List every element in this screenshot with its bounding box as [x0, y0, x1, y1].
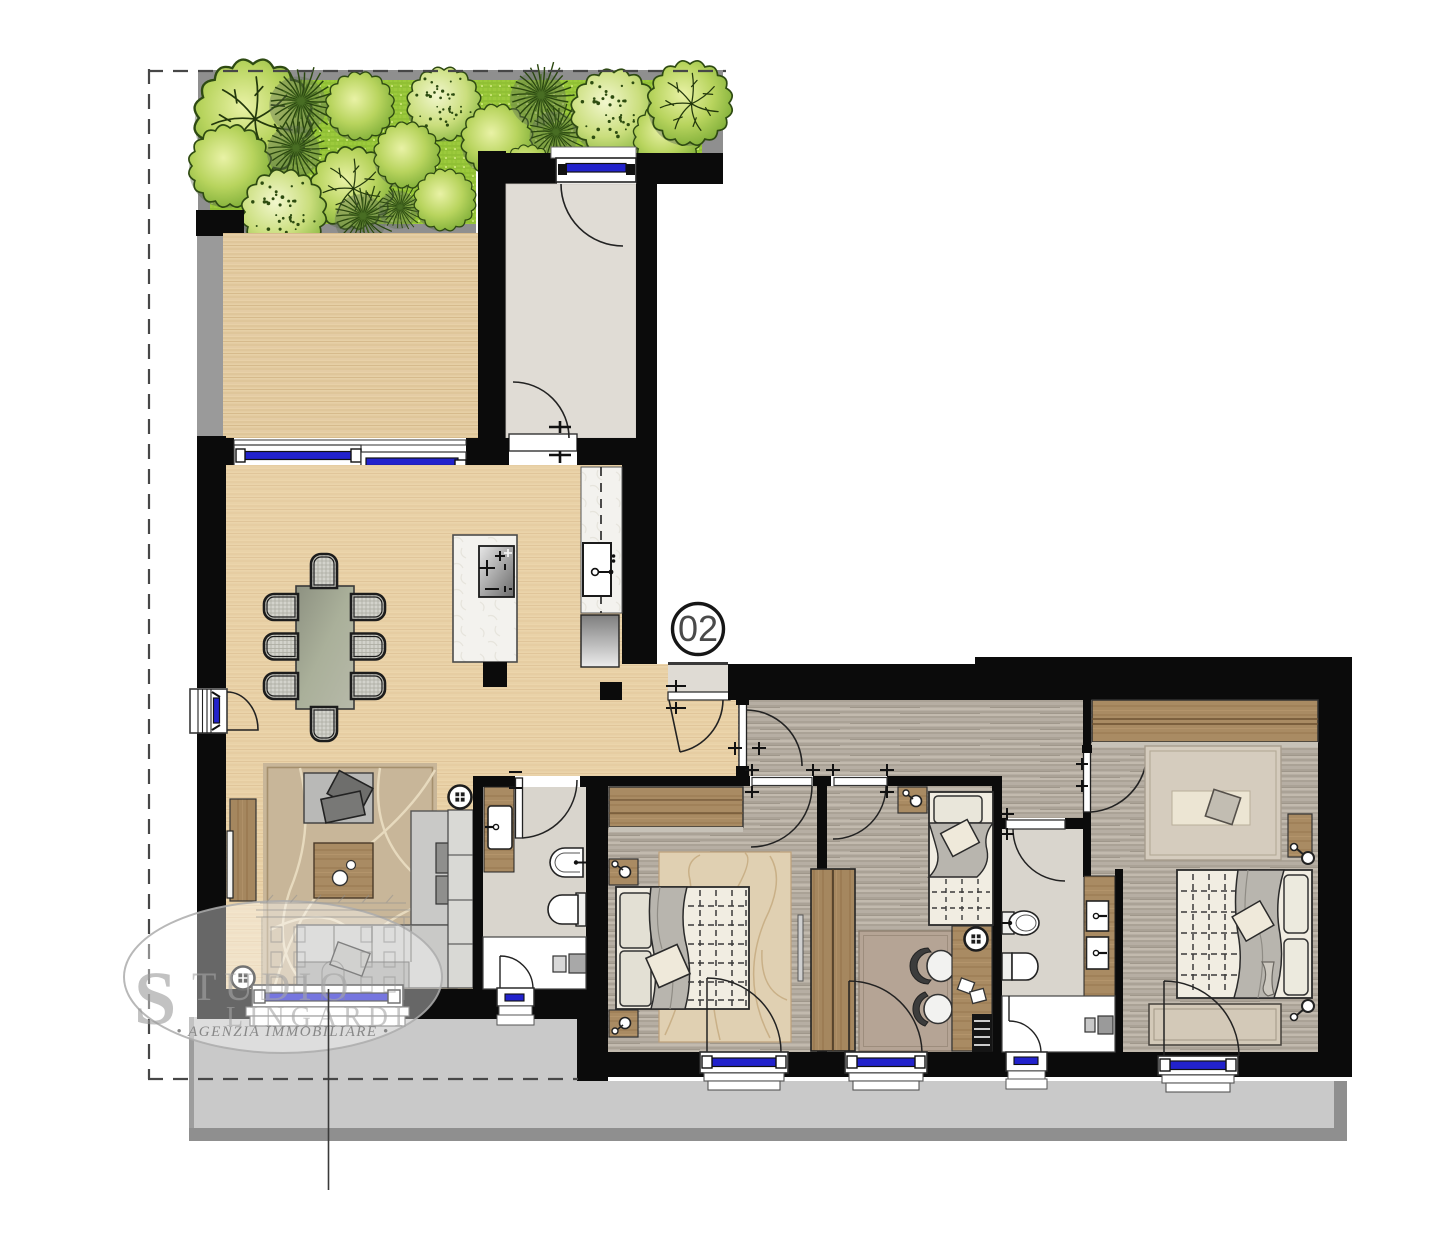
svg-text:S: S — [134, 957, 176, 1041]
svg-text:• AGENZIA IMMOBILIARE •: • AGENZIA IMMOBILIARE • — [176, 1024, 389, 1040]
svg-text:02: 02 — [678, 608, 718, 649]
